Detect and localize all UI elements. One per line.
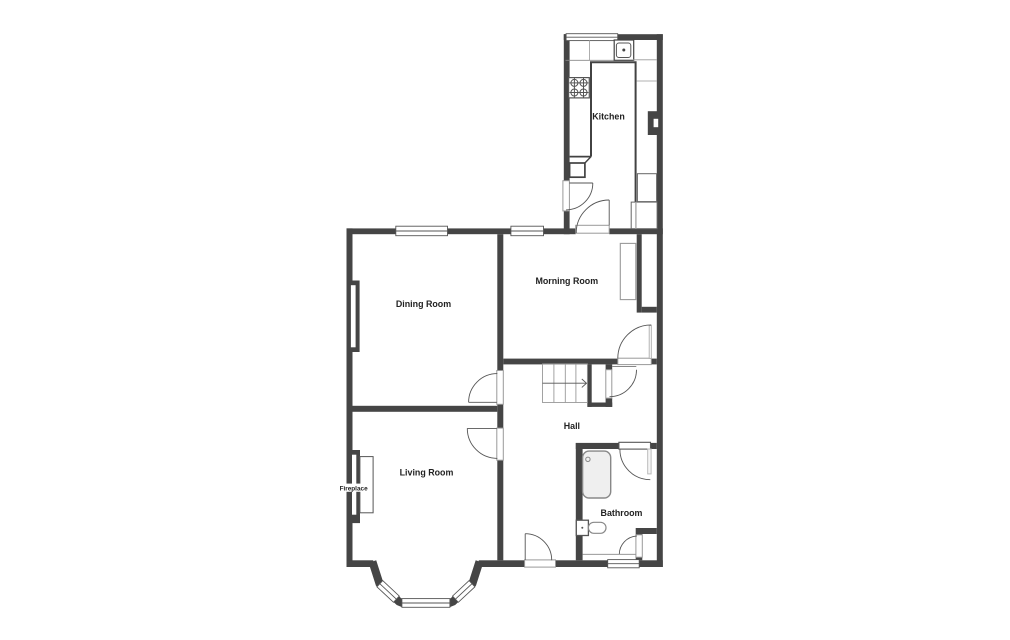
- svg-text:Morning Room: Morning Room: [535, 276, 598, 286]
- svg-text:Hall: Hall: [564, 421, 580, 431]
- svg-text:Kitchen: Kitchen: [592, 112, 625, 122]
- svg-text:Fireplace: Fireplace: [340, 486, 369, 493]
- svg-text:Dining Room: Dining Room: [396, 299, 451, 309]
- svg-text:Bathroom: Bathroom: [601, 508, 643, 518]
- svg-text:Living Room: Living Room: [400, 468, 454, 478]
